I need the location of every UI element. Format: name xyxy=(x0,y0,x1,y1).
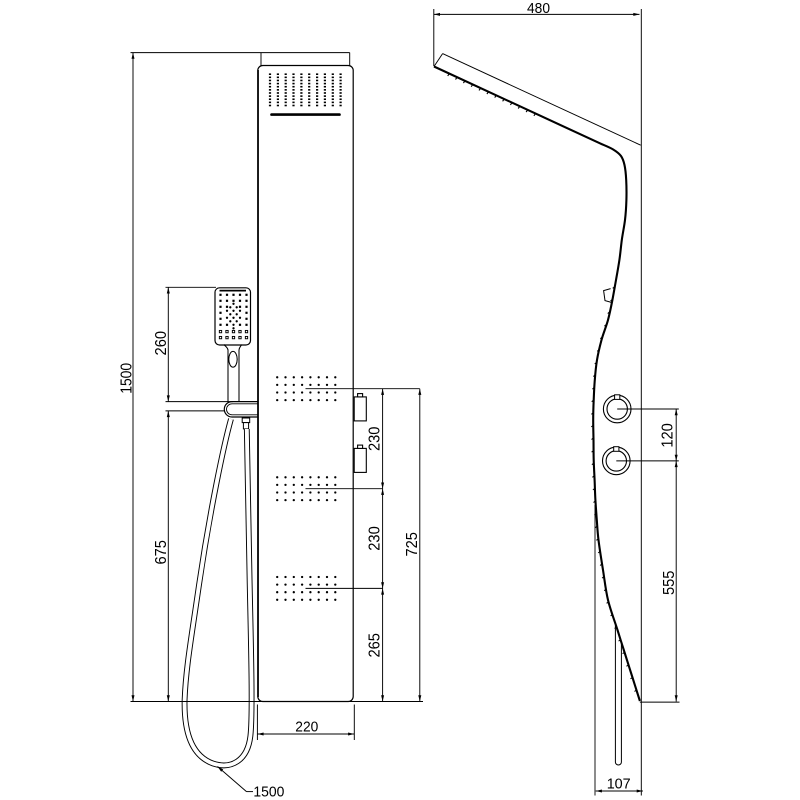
svg-text:107: 107 xyxy=(607,776,631,792)
svg-text:555: 555 xyxy=(661,570,678,595)
svg-text:1500: 1500 xyxy=(253,784,284,800)
svg-text:480: 480 xyxy=(527,1,550,17)
svg-text:725: 725 xyxy=(404,532,421,557)
svg-text:220: 220 xyxy=(295,720,318,736)
svg-text:230: 230 xyxy=(367,426,384,451)
svg-text:1500: 1500 xyxy=(118,363,135,394)
svg-text:260: 260 xyxy=(153,331,170,356)
svg-text:120: 120 xyxy=(660,423,677,448)
svg-text:675: 675 xyxy=(153,540,170,565)
svg-text:265: 265 xyxy=(367,633,384,658)
svg-text:230: 230 xyxy=(367,526,384,551)
